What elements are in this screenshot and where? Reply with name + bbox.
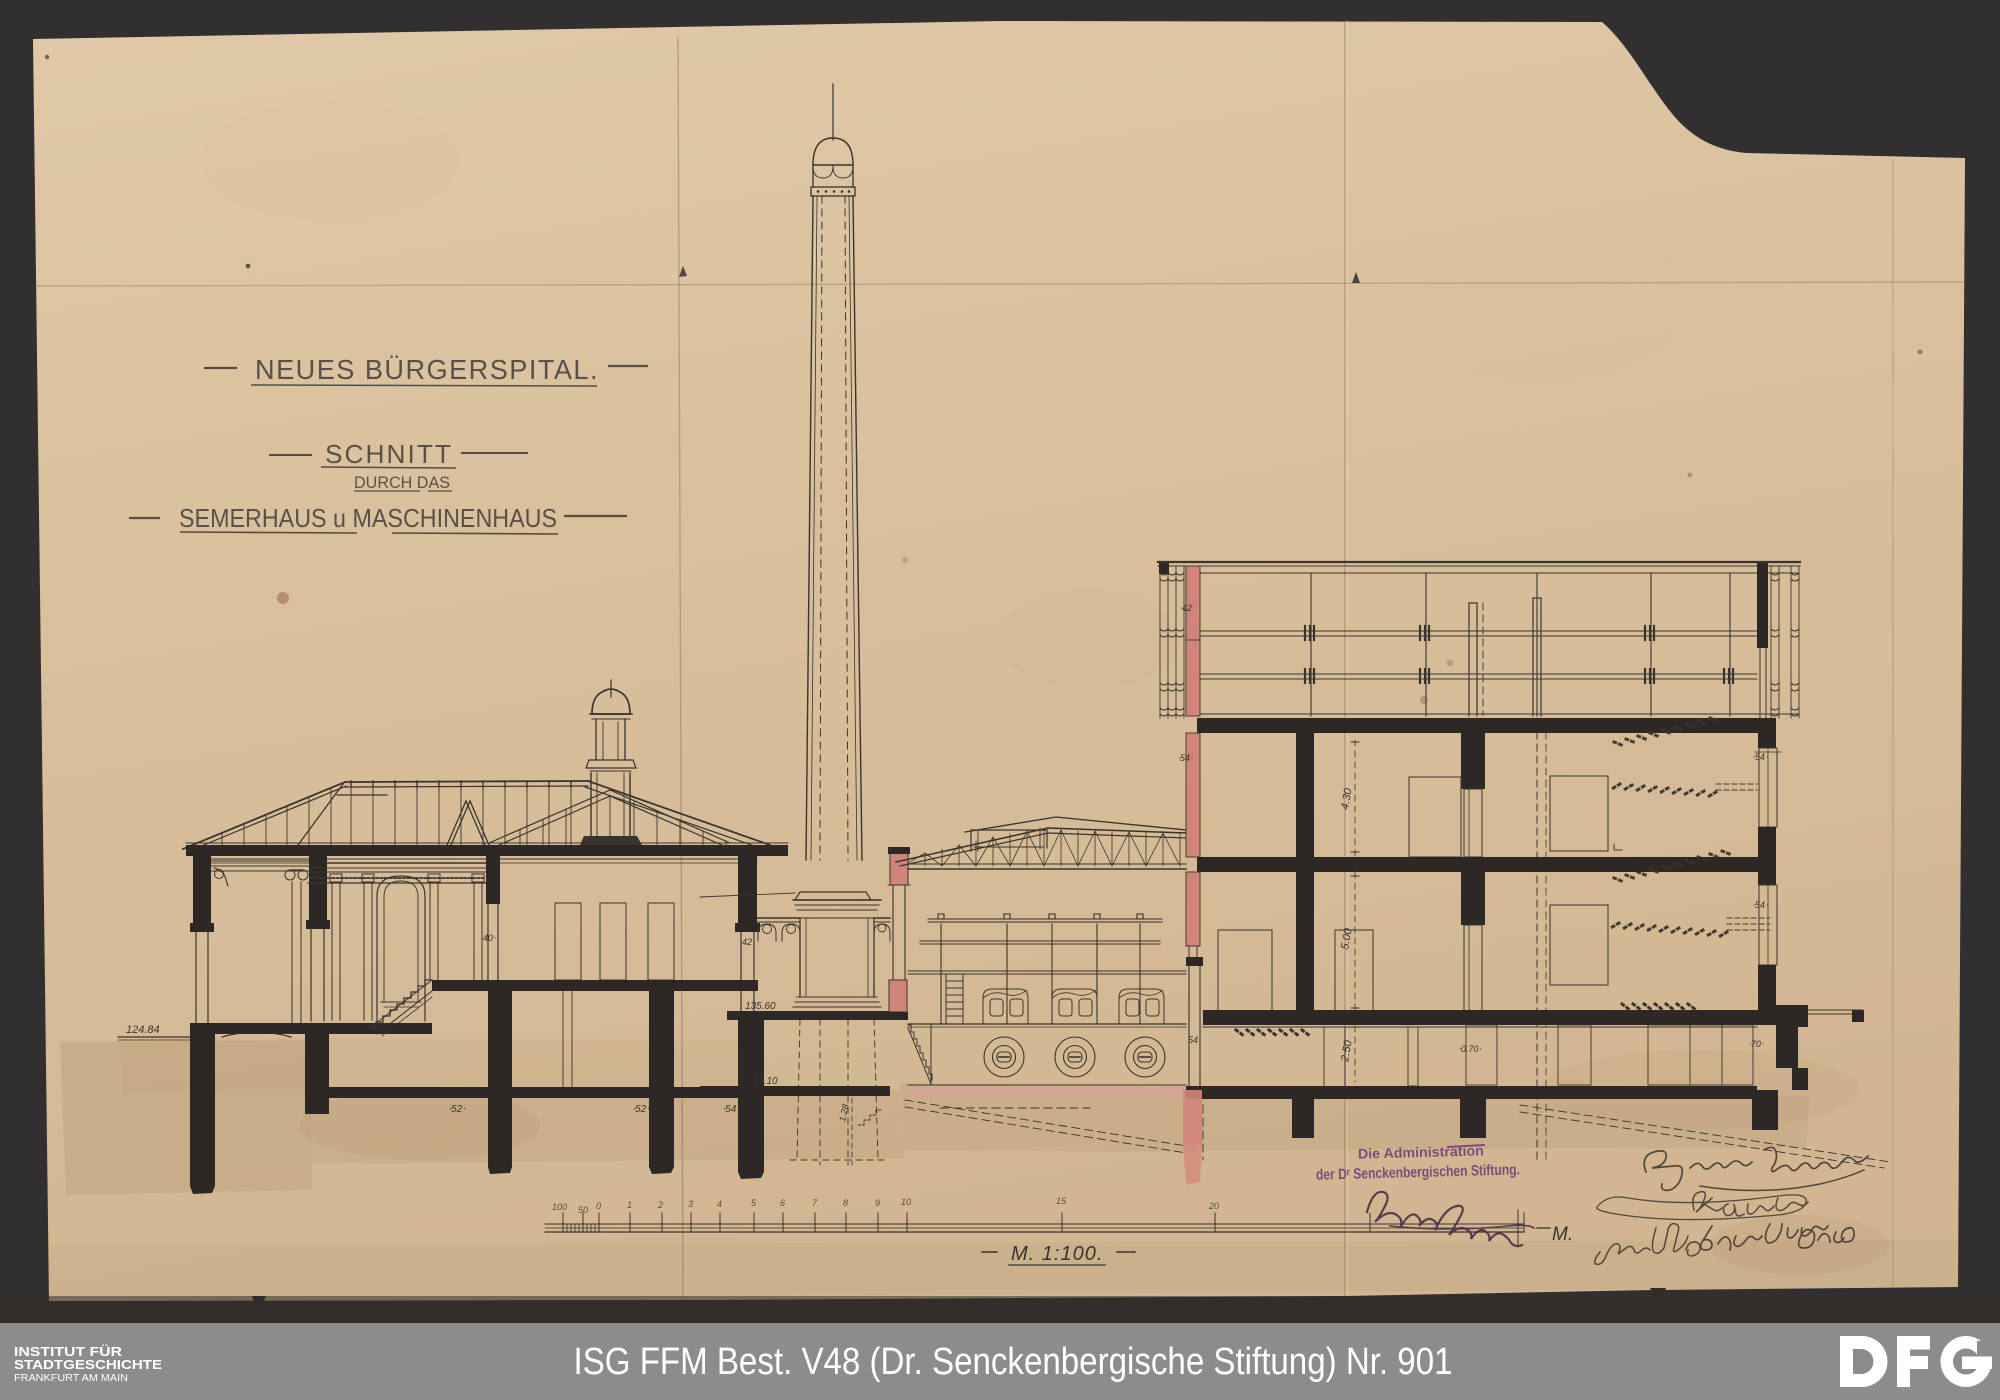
svg-text:⋅54⋅: ⋅54⋅ [1752, 900, 1768, 910]
svg-text:M.: M. [1552, 1224, 1573, 1245]
svg-text:124.84: 124.84 [126, 1024, 160, 1036]
svg-text:135.60: 135.60 [745, 1001, 776, 1012]
svg-text:ISG FFM Best. V48 (Dr. Sencken: ISG FFM Best. V48 (Dr. Senckenbergische … [574, 1341, 1453, 1383]
svg-text:INSTITUT FÜR: INSTITUT FÜR [14, 1344, 122, 1359]
svg-text:133.10: 133.10 [747, 1076, 778, 1087]
svg-text:54: 54 [1188, 1035, 1198, 1045]
svg-text:⋅54⋅: ⋅54⋅ [1177, 753, 1193, 763]
svg-text:NEUES BÜRGERSPITAL.: NEUES BÜRGERSPITAL. [255, 354, 599, 385]
svg-text:10: 10 [901, 1197, 911, 1207]
svg-text:⋅52⋅: ⋅52⋅ [448, 1104, 466, 1115]
svg-text:M. 1:100.: M. 1:100. [1011, 1243, 1103, 1265]
svg-text:8: 8 [843, 1198, 848, 1208]
svg-text:4: 4 [717, 1199, 722, 1209]
svg-text:⋅0.70⋅: ⋅0.70⋅ [1458, 1044, 1481, 1054]
svg-text:FRANKFURT AM MAIN: FRANKFURT AM MAIN [14, 1372, 128, 1384]
svg-text:SCHNITT: SCHNITT [325, 439, 453, 469]
svg-text:50: 50 [578, 1205, 588, 1215]
svg-text:3: 3 [688, 1199, 693, 1209]
svg-text:⋅54⋅: ⋅54⋅ [1752, 752, 1768, 762]
svg-text:20: 20 [1208, 1201, 1219, 1211]
svg-text:42: 42 [742, 937, 752, 947]
svg-text:⋅70⋅: ⋅70⋅ [1748, 1039, 1764, 1049]
svg-text:9: 9 [875, 1198, 880, 1208]
svg-text:STADTGESCHICHTE: STADTGESCHICHTE [14, 1358, 162, 1372]
svg-text:100: 100 [552, 1202, 567, 1212]
svg-text:⋅54⋅: ⋅54⋅ [722, 1104, 740, 1115]
svg-text:1: 1 [627, 1200, 632, 1210]
svg-text:6: 6 [780, 1198, 785, 1208]
svg-text:⋅52⋅: ⋅52⋅ [632, 1104, 650, 1115]
svg-text:2: 2 [657, 1200, 663, 1210]
svg-text:0: 0 [596, 1201, 601, 1211]
svg-text:DURCH DAS: DURCH DAS [354, 473, 450, 492]
svg-text:⋅42⋅: ⋅42⋅ [1179, 603, 1195, 613]
svg-text:15: 15 [1056, 1196, 1067, 1206]
svg-text:⋅40⋅: ⋅40⋅ [480, 933, 496, 943]
svg-text:SEMERHAUS u MASCHINENHAUS: SEMERHAUS u MASCHINENHAUS [179, 503, 557, 533]
